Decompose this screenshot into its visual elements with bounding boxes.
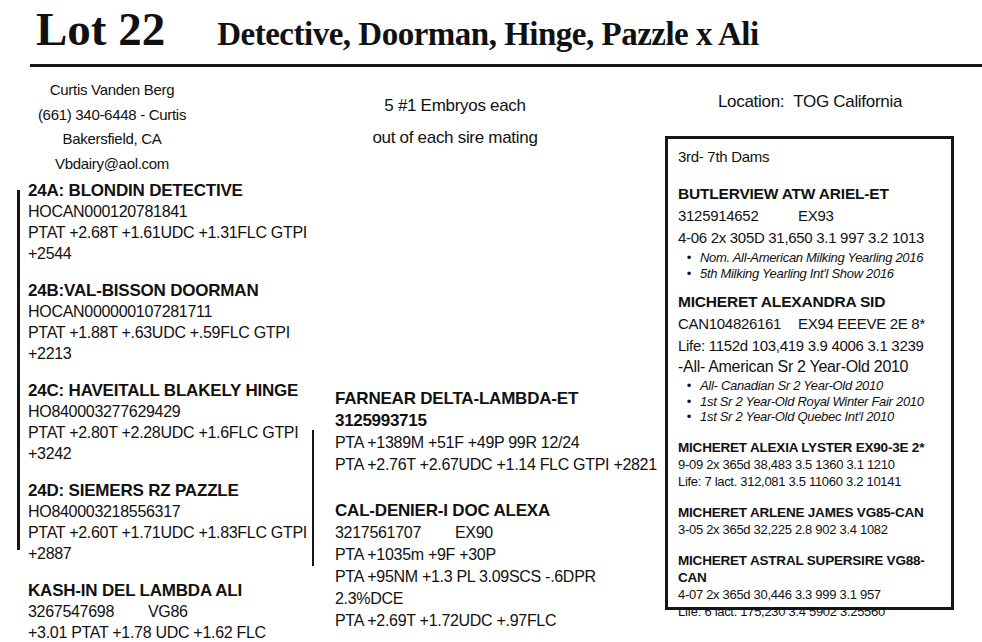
page-header: Lot 22 Detective, Doorman, Hinge, Pazzle… — [36, 2, 759, 56]
sire-reg: HO840003277629429 — [28, 401, 326, 422]
dam-awards: • All- Canadian Sr 2 Year-Old 2010 • 1st… — [678, 378, 941, 425]
bullet-icon: • — [678, 266, 700, 282]
sire-entry: 24C: HAVEITALL BLAKELY HINGE HO840003277… — [28, 380, 326, 464]
dam-reg: CAN104826161 — [678, 313, 798, 335]
location-value: TOG California — [793, 92, 902, 111]
animal-score: EX90 — [455, 522, 493, 544]
bullet-icon: • — [678, 378, 700, 394]
proof-line: PTA +1035m +9F +30P — [335, 544, 657, 566]
dam-entry: BUTLERVIEW ATW ARIEL-ET 3125914652 EX93 … — [678, 183, 941, 281]
proof-line: PTA +2.76T +2.67UDC +1.14 FLC GTPI +2821 — [335, 454, 657, 476]
consignor-email: Vbdairy@aol.com — [12, 152, 212, 177]
sire-proof: PTAT +2.60T +1.71UDC +1.83FLC GTPI +2887 — [28, 522, 326, 564]
donor-entry: KASH-IN DEL LAMBDA ALI 3267547698 VG86 +… — [28, 580, 326, 642]
sire-reg: HO840003218556317 — [28, 501, 326, 522]
lot-number: Lot 22 — [36, 2, 165, 56]
sire-reg: HOCAN000120781841 — [28, 201, 326, 222]
sire-entry: 24A: BLONDIN DETECTIVE HOCAN000120781841… — [28, 180, 326, 264]
award-item: • 1st Sr 2 Year-Old Royal Winter Fair 20… — [678, 394, 941, 410]
animal-name: FARNEAR DELTA-LAMBDA-ET — [335, 388, 657, 410]
award-text: Nom. All-American Milking Yearling 2016 — [700, 250, 923, 266]
dam-score: EX94 EEEVE 2E 8* — [798, 313, 925, 335]
proof-line: PTA +1389M +51F +49P 99R 12/24 — [335, 432, 657, 454]
bullet-icon: • — [678, 394, 700, 410]
award-item: • All- Canadian Sr 2 Year-Old 2010 — [678, 378, 941, 394]
dam-name: BUTLERVIEW ATW ARIEL-ET — [678, 183, 941, 205]
dam-name: MICHERET ASTRAL SUPERSIRE VG88-CAN — [678, 552, 941, 586]
sire-entry: 24D: SIEMERS RZ PAZZLE HO840003218556317… — [28, 480, 326, 564]
location-line: Location:TOG California — [660, 92, 960, 112]
dam-entry: MICHERET ARLENE JAMES VG85-CAN 3-05 2x 3… — [678, 504, 941, 538]
animal-name: CAL-DENIER-I DOC ALEXA — [335, 500, 657, 522]
dam-record: 3-05 2x 365d 32,225 2.8 902 3.4 1082 — [678, 521, 941, 538]
dams-box: 3rd- 7th Dams BUTLERVIEW ATW ARIEL-ET 31… — [665, 136, 954, 610]
animal-reg: 3125993715 — [335, 410, 657, 432]
dam-reg-row: CAN104826161 EX94 EEEVE 2E 8* — [678, 313, 941, 335]
sire-name: 24D: SIEMERS RZ PAZZLE — [28, 480, 326, 501]
donor-proof: +3.01 PTAT +1.78 UDC +1.62 FLC +2682TPI — [28, 622, 326, 642]
proof-line: PTA +95NM +1.3 PL 3.09SCS -.6DPR 2.3%DCE — [335, 566, 657, 610]
consignor-city: Bakersfield, CA — [12, 127, 212, 152]
header-divider — [30, 64, 982, 67]
dam-award-note: -All- American Sr 2 Year-Old 2010 — [678, 357, 941, 377]
dam-entry: MICHERET ALEXANDRA SID CAN104826161 EX94… — [678, 291, 941, 425]
dam-record: 9-09 2x 365d 38,483 3.5 1360 3.1 1210 — [678, 456, 941, 473]
award-item: • 1st Sr 2 Year-Old Quebec Int'l 2010 — [678, 409, 941, 425]
consignor-name: Curtis Vanden Berg — [12, 78, 212, 103]
proof-line: PTA +2.69T +1.72UDC +.97FLC — [335, 610, 657, 632]
middle-pedigree-column: FARNEAR DELTA-LAMBDA-ET 3125993715 PTA +… — [335, 388, 657, 642]
dam-record: 4-07 2x 365d 30,446 3.3 999 3.1 957 — [678, 586, 941, 603]
sire-name: 24C: HAVEITALL BLAKELY HINGE — [28, 380, 326, 401]
animal-reg-row: 3217561707 EX90 — [335, 522, 657, 544]
offering-line-2: out of each sire mating — [330, 122, 580, 154]
sire-name: 24B:VAL-BISSON DOORMAN — [28, 280, 326, 301]
award-item: • Nom. All-American Milking Yearling 201… — [678, 250, 941, 266]
dam-record: Life: 6 lact. 175,230 3.4 5902 3.25560 — [678, 603, 941, 620]
donor-score: VG86 — [148, 601, 188, 622]
dam-reg-row: 3125914652 EX93 — [678, 205, 941, 227]
award-text: 1st Sr 2 Year-Old Royal Winter Fair 2010 — [700, 394, 924, 410]
lot-title: Detective, Doorman, Hinge, Pazzle x Ali — [217, 16, 758, 53]
dam-name: MICHERET ALEXIA LYSTER EX90-3E 2* — [678, 439, 941, 456]
pedigree-entry: CAL-DENIER-I DOC ALEXA 3217561707 EX90 P… — [335, 500, 657, 632]
dam-name: MICHERET ARLENE JAMES VG85-CAN — [678, 504, 941, 521]
dam-awards: • Nom. All-American Milking Yearling 201… — [678, 250, 941, 281]
donor-name: KASH-IN DEL LAMBDA ALI — [28, 580, 326, 601]
consignor-phone: (661) 340-6448 - Curtis — [12, 103, 212, 128]
sire-proof: PTAT +2.80T +2.28UDC +1.6FLC GTPI +3242 — [28, 422, 326, 464]
sire-proof: PTAT +1.88T +.63UDC +.59FLC GTPI +2213 — [28, 322, 326, 364]
bullet-icon: • — [678, 250, 700, 266]
sire-entry: 24B:VAL-BISSON DOORMAN HOCAN000000107281… — [28, 280, 326, 364]
donor-reg-row: 3267547698 VG86 — [28, 601, 326, 622]
dam-score: EX93 — [798, 205, 834, 227]
sire-list: 24A: BLONDIN DETECTIVE HOCAN000120781841… — [28, 180, 326, 642]
dam-reg: 3125914652 — [678, 205, 798, 227]
bullet-icon: • — [678, 409, 700, 425]
dam-name: MICHERET ALEXANDRA SID — [678, 291, 941, 313]
left-column-rule — [17, 190, 20, 550]
animal-reg: 3217561707 — [335, 522, 455, 544]
offering-line-1: 5 #1 Embryos each — [330, 90, 580, 122]
dam-record: 4-06 2x 305D 31,650 3.1 997 3.2 1013 — [678, 227, 941, 249]
dam-record: Life: 1152d 103,419 3.9 4006 3.1 3239 — [678, 335, 941, 357]
offering-note: 5 #1 Embryos each out of each sire matin… — [330, 90, 580, 154]
award-item: • 5th Milking Yearling Int'l Show 2016 — [678, 266, 941, 282]
dam-entry: MICHERET ALEXIA LYSTER EX90-3E 2* 9-09 2… — [678, 439, 941, 490]
award-text: 5th Milking Yearling Int'l Show 2016 — [700, 266, 894, 282]
sire-reg: HOCAN000000107281711 — [28, 301, 326, 322]
dam-entry: MICHERET ASTRAL SUPERSIRE VG88-CAN 4-07 … — [678, 552, 941, 620]
sire-proof: PTAT +2.68T +1.61UDC +1.31FLC GTPI +2544 — [28, 222, 326, 264]
sire-name: 24A: BLONDIN DETECTIVE — [28, 180, 326, 201]
award-text: 1st Sr 2 Year-Old Quebec Int'l 2010 — [700, 409, 894, 425]
award-text: All- Canadian Sr 2 Year-Old 2010 — [700, 378, 883, 394]
location-label: Location: — [718, 92, 784, 111]
catalog-page: Lot 22 Detective, Doorman, Hinge, Pazzle… — [0, 0, 982, 642]
donor-reg: 3267547698 — [28, 601, 148, 622]
pedigree-entry: FARNEAR DELTA-LAMBDA-ET 3125993715 PTA +… — [335, 388, 657, 476]
consignor-contact: Curtis Vanden Berg (661) 340-6448 - Curt… — [12, 78, 212, 176]
dams-box-heading: 3rd- 7th Dams — [678, 147, 941, 167]
dam-record: Life: 7 lact. 312,081 3.5 11060 3.2 1014… — [678, 473, 941, 490]
